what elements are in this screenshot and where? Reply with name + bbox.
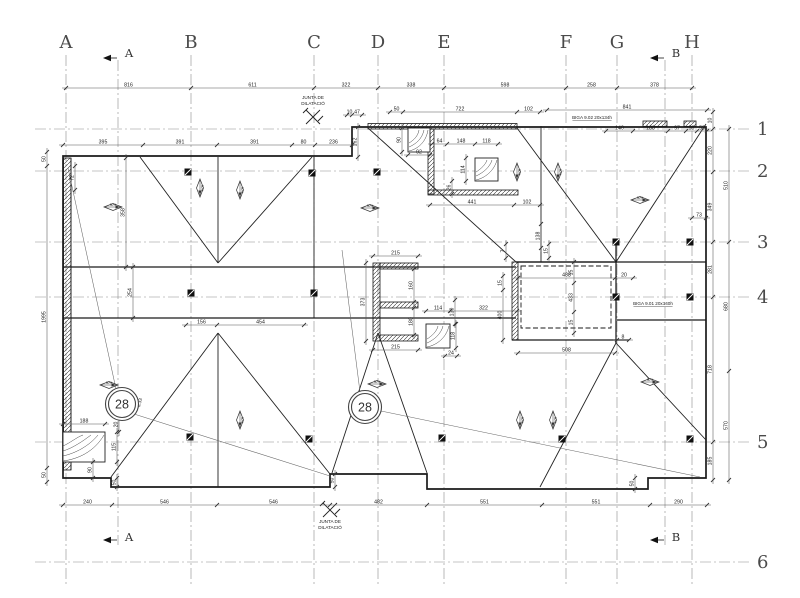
junta-symbol-top [303, 108, 323, 124]
grid-col-label-E: E [437, 32, 450, 53]
inner-wall-lines [71, 126, 541, 470]
skylight-2 [475, 158, 498, 181]
section-arrow-icon [650, 537, 658, 543]
grid-col-label-B: B [184, 32, 197, 53]
dim-label: 156 [197, 320, 206, 326]
e-structure-arm-top [380, 263, 418, 269]
dim-label: 7 [501, 249, 507, 252]
e-structure-arm-mid [380, 302, 418, 308]
dim-label: 454 [256, 320, 265, 326]
dim-label: 162 [353, 138, 359, 147]
dim-label: 510 [724, 181, 730, 190]
slope-indicator-icon: 30% [197, 179, 205, 197]
e-structure-arm-bottom [380, 335, 418, 341]
dim-label: 92 [416, 150, 422, 156]
grid-col-label-F: F [560, 32, 573, 53]
detail-bubble-number: 28 [358, 401, 372, 415]
dim-label: 50 [42, 472, 48, 478]
slope-indicator-icon: 30% [641, 378, 659, 386]
annotation-text: DILATACIÓ [301, 100, 325, 106]
dim-label: 215 [391, 345, 400, 351]
dim-label: 15 [569, 270, 575, 276]
dim-label: 20 [621, 273, 627, 279]
dim-label: 546 [269, 500, 278, 506]
dim-label: 358 [121, 208, 127, 217]
slope-indicator-icon: 30% [100, 381, 118, 389]
svg-text:30%: 30% [240, 417, 244, 424]
dim-label: 1995 [42, 311, 48, 323]
symbols-and-labels: AABBJUNTA DEDILATACIÓJUNTA DEDILATACIÓBI… [100, 46, 694, 544]
dim-label: 240 [83, 500, 92, 506]
svg-text:30%: 30% [637, 196, 644, 200]
dim-label: 841 [623, 105, 632, 111]
dim-label: 290 [674, 500, 683, 506]
e-structure-spine [373, 263, 380, 341]
dim-label: 482 [374, 500, 383, 506]
grid-row-label-5: 5 [757, 432, 768, 453]
block-wall-hatch [512, 262, 518, 340]
dim-label: 140 [615, 126, 624, 132]
section-label-B: B [672, 530, 680, 544]
expansion-joint-symbols [303, 108, 340, 517]
slope-indicator-icon: 30% [555, 163, 563, 181]
dim-label: 546 [160, 500, 169, 506]
dim-label: 215 [391, 251, 400, 257]
grid-axes: ABCDEFGH123456 [35, 32, 768, 585]
slope-indicator-icon: 30% [514, 163, 522, 181]
slope-indicator-icon: 30% [631, 196, 649, 204]
dim-label: 80 [301, 140, 307, 146]
dim-label: 508 [562, 348, 571, 354]
grid-row-label-4: 4 [757, 287, 768, 308]
dim-label: 373 [361, 298, 367, 307]
dim-label: 338 [407, 83, 416, 89]
svg-text:30%: 30% [200, 185, 204, 192]
grid-col-label-C: C [307, 32, 321, 53]
dim-label: 20 [114, 422, 120, 428]
dim-label: 680 [724, 302, 730, 311]
dim-label: 50 [112, 480, 118, 486]
dim-label: 236 [329, 140, 338, 146]
dim-label: 97 [674, 126, 680, 132]
grid-col-label-A: A [59, 32, 74, 53]
svg-text:30%: 30% [558, 169, 562, 176]
dim-label: 400 [498, 311, 504, 320]
annotation-text: JUNTA DE [319, 519, 341, 524]
corridor-lines [63, 262, 706, 320]
svg-text:30%: 30% [647, 378, 654, 382]
dim-label: 722 [456, 107, 465, 113]
dim-label: 114 [461, 165, 467, 173]
dim-label: 64 [437, 139, 443, 145]
dim-label: 73 [696, 213, 702, 219]
annotation-text: BIGA 9.02 20x134h [572, 115, 612, 120]
grid-row-label-2: 2 [757, 161, 768, 182]
dim-label: 15 [498, 280, 504, 286]
grid-col-label-D: D [371, 32, 385, 53]
dim-label: 718 [708, 365, 714, 374]
dim-label: 160 [409, 281, 415, 290]
dim-label: 188 [80, 419, 89, 425]
dim-label: 47 [354, 110, 360, 116]
section-arrow-icon [650, 55, 658, 61]
dim-label: 391 [176, 140, 185, 146]
top-beam-hatch [368, 124, 517, 130]
svg-text:30%: 30% [106, 381, 113, 385]
dim-label: 551 [592, 500, 601, 506]
grid-row-label-3: 3 [757, 232, 768, 253]
dim-label: 10 [708, 118, 714, 124]
floor-plan-drawing: ABCDEFGH123456 [0, 0, 800, 598]
svg-text:30%: 30% [110, 203, 117, 207]
svg-text:30%: 30% [240, 187, 244, 194]
dim-label: 138 [536, 232, 542, 241]
dim-label: 598 [501, 83, 510, 89]
dim-label: 53 [699, 126, 705, 132]
dim-label: 391 [250, 140, 259, 146]
grid-col-label-H: H [684, 32, 700, 53]
dim-label: 102 [523, 200, 532, 206]
section-label-A: A [124, 46, 134, 60]
dim-label: 26 [447, 185, 453, 191]
dim-label: 102 [524, 107, 533, 113]
dim-label: 15 [544, 248, 550, 254]
slope-indicator-icon: 30% [237, 411, 245, 429]
cad-roof-plan-page: ABCDEFGH123456 [0, 0, 800, 598]
slope-indicator-icon: 30% [368, 380, 386, 388]
dim-label: 551 [480, 500, 489, 506]
dim-label: 148 [457, 139, 466, 145]
section-label-A: A [124, 530, 134, 544]
dimension-chains: 8166113223385982583783953913918023610475… [42, 83, 732, 508]
svg-text:30%: 30% [520, 417, 524, 424]
skylight-3 [426, 324, 450, 348]
left-wall-hatch [64, 158, 72, 470]
annotation-text: BIGA 9.01 20x140h [633, 301, 673, 306]
dim-label: 441 [468, 200, 477, 206]
slope-indicator-icon: 30% [517, 411, 525, 429]
dim-label: 188 [646, 126, 655, 132]
detail-bubble-number: 28 [115, 398, 129, 412]
dim-label: 118 [451, 332, 457, 340]
section-arrow-icon [103, 55, 111, 61]
grid-col-label-G: G [610, 32, 624, 53]
stair-detail [63, 432, 105, 462]
dim-label: 570 [724, 421, 730, 430]
junta-symbol-bottom [320, 501, 340, 517]
dim-label: 349 [708, 203, 714, 212]
dim-label: 378 [650, 83, 659, 89]
svg-text:30%: 30% [553, 417, 557, 424]
detail-leader-lines [68, 168, 700, 477]
dim-label: 72 [70, 175, 76, 181]
slope-indicator-icon: 30% [104, 203, 122, 211]
dim-label: 395 [99, 140, 108, 146]
dim-label: 322 [342, 83, 351, 89]
dim-label: 115 [112, 443, 118, 451]
dim-label: 10 [347, 110, 353, 116]
dim-label: 258 [587, 83, 596, 89]
dim-label: 185 [708, 457, 714, 466]
section-label-B: B [672, 46, 680, 60]
dim-label: 50 [394, 107, 400, 113]
dim-label: 322 [479, 306, 488, 312]
svg-text:30%: 30% [374, 380, 381, 384]
skylight-1 [408, 128, 430, 152]
dim-label: 58 [689, 126, 695, 132]
dim-label: 118 [482, 139, 490, 145]
annotation-text: JUNTA DE [302, 95, 324, 100]
dim-label: 50 [630, 481, 636, 487]
dim-label: 433 [569, 293, 575, 302]
annotation-text: DILATACIÓ [318, 524, 342, 530]
dim-label: 8 [622, 335, 625, 341]
dim-label: 281 [708, 265, 714, 274]
dim-label: 816 [124, 83, 133, 89]
dim-label: 180 [409, 317, 415, 326]
dim-label: 90 [88, 467, 94, 473]
slope-indicator-icon: 30% [361, 204, 379, 212]
dim-label: 254 [128, 288, 134, 297]
dim-label: 220 [708, 146, 714, 155]
dim-label: 130 [450, 308, 456, 317]
dim-label: 114 [434, 306, 442, 312]
dim-label: 15 [569, 320, 575, 326]
svg-text:30%: 30% [517, 169, 521, 176]
slope-indicator-icon: 30% [237, 181, 245, 199]
dim-label: 611 [248, 83, 256, 89]
dim-label: 90 [397, 137, 403, 143]
grid-row-label-1: 1 [757, 119, 768, 140]
dim-label: 50 [330, 478, 336, 484]
grid-row-label-6: 6 [757, 552, 768, 573]
svg-text:30%: 30% [367, 204, 374, 208]
dim-label: 50 [42, 156, 48, 162]
dim-label: 24 [448, 351, 454, 357]
slope-indicator-icon: 30% [550, 411, 558, 429]
section-arrow-icon [103, 537, 111, 543]
